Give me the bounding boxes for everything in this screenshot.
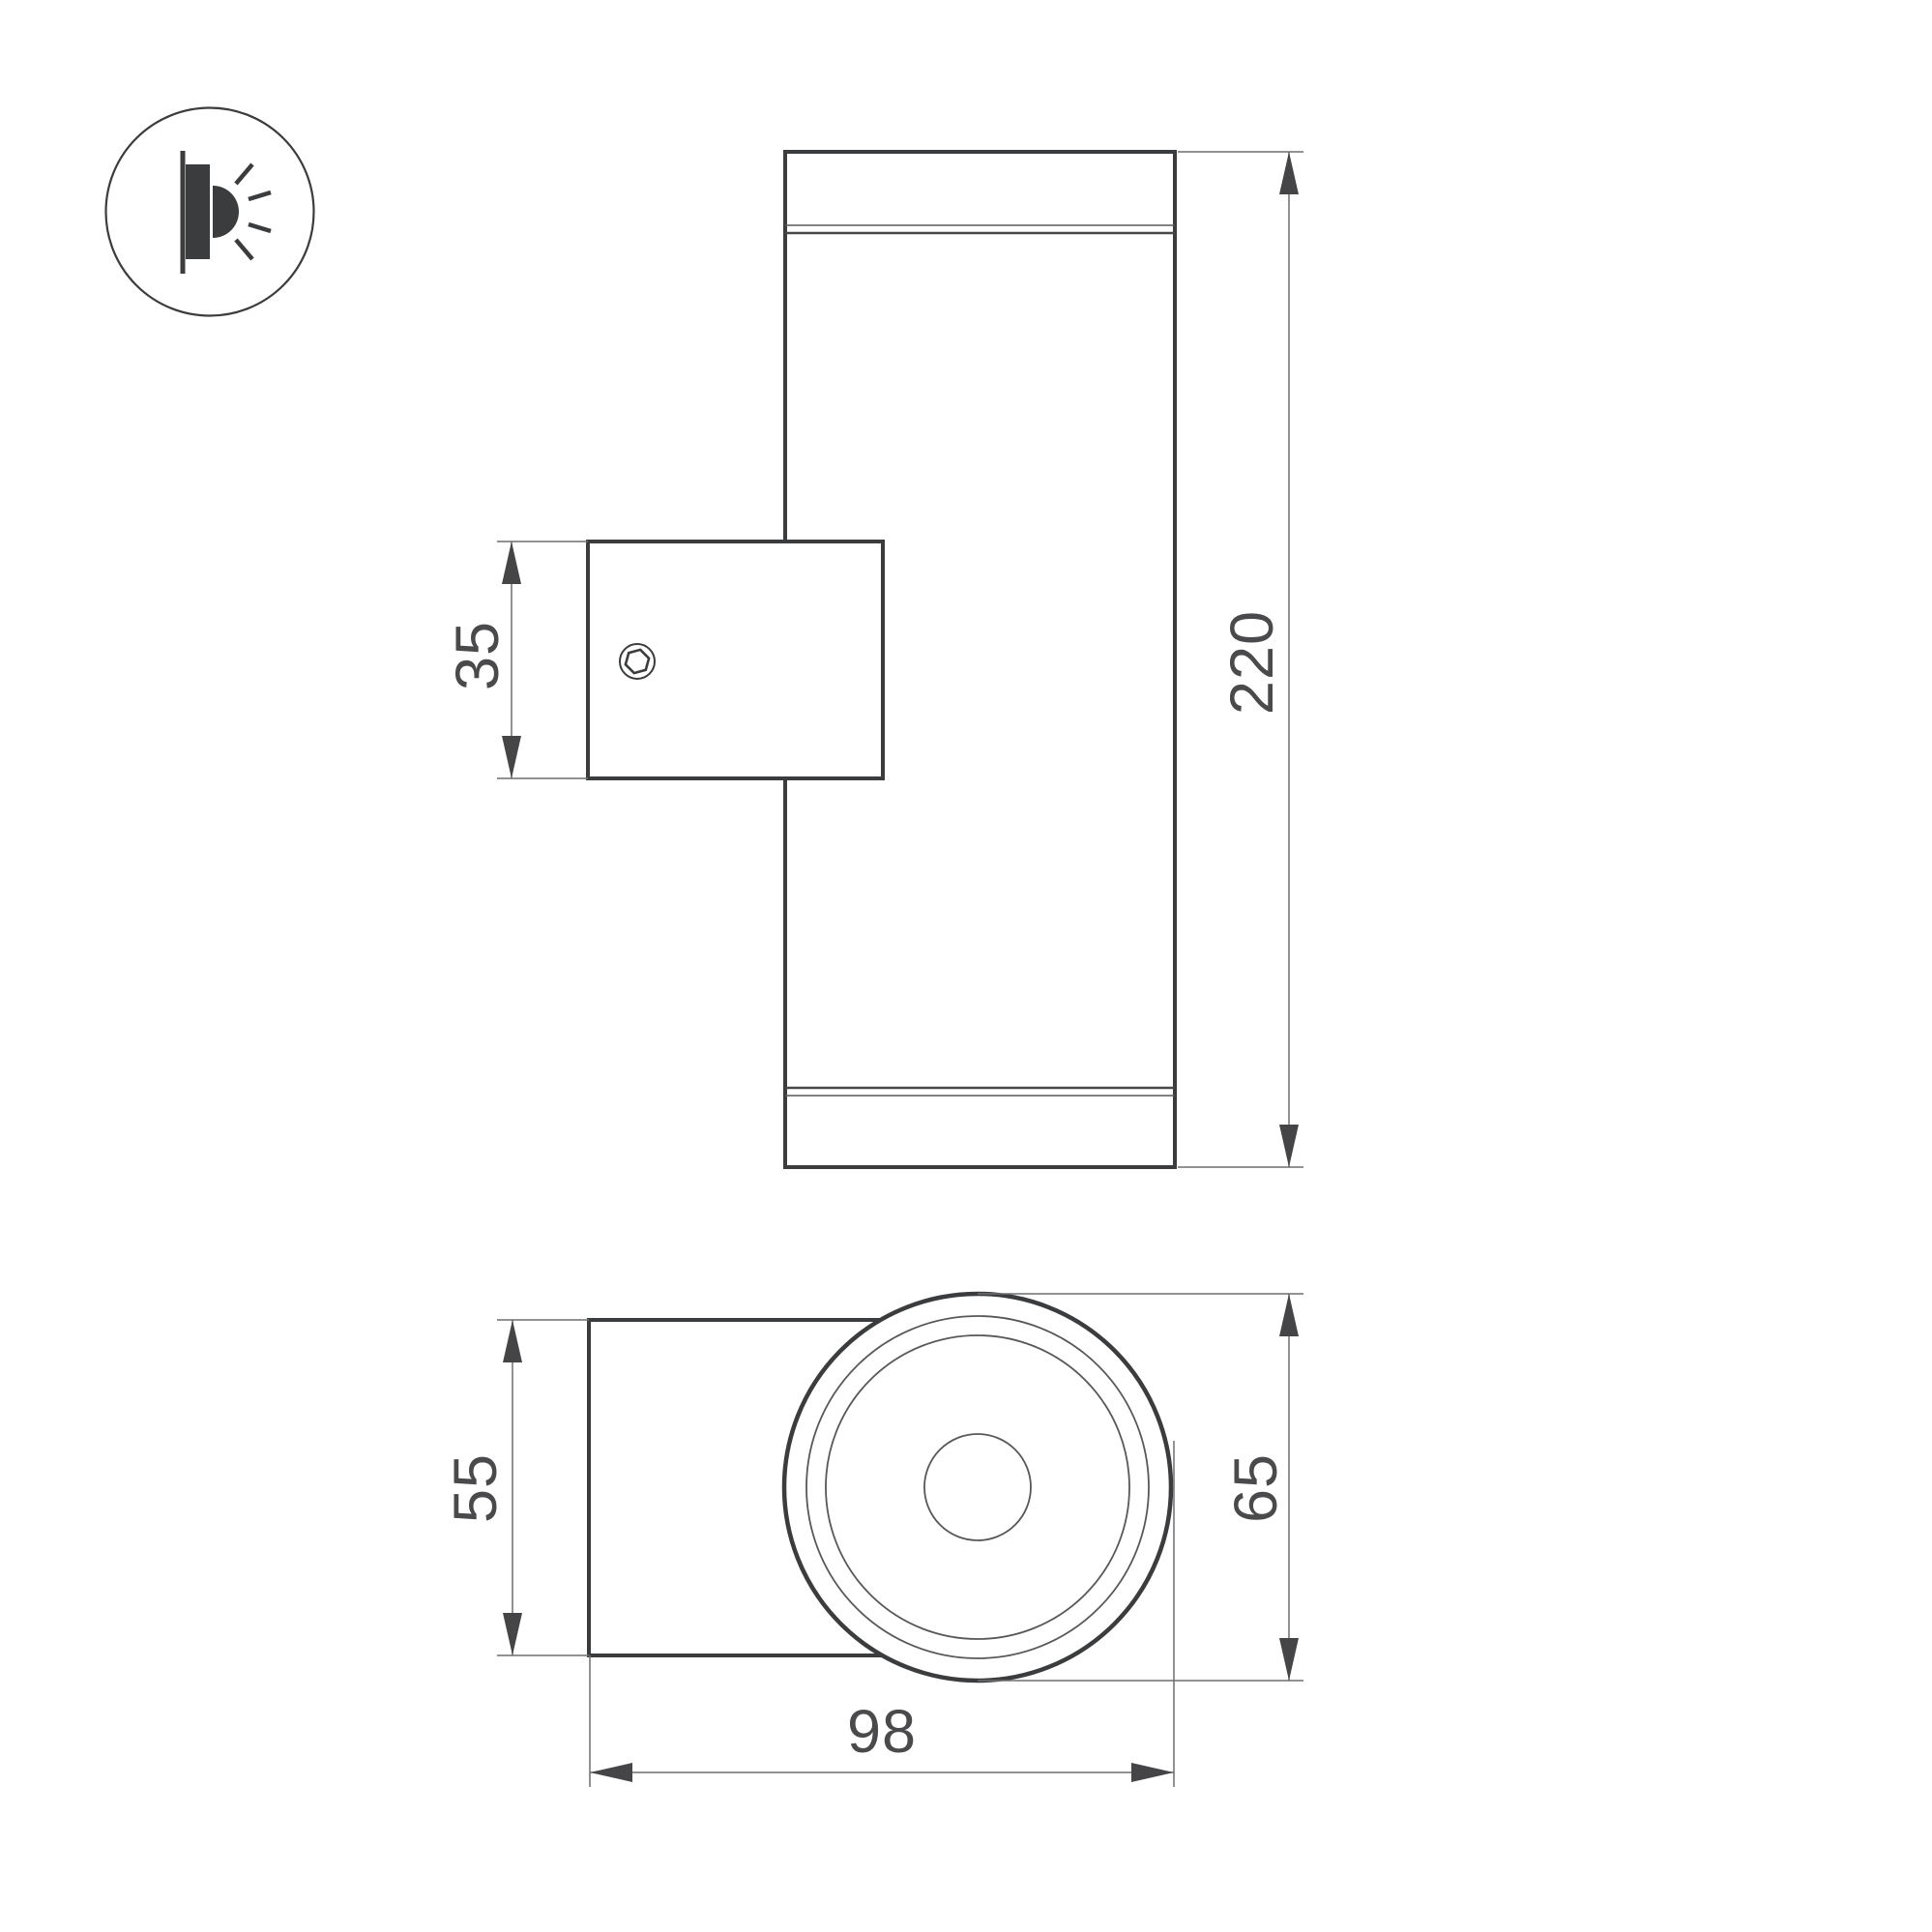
dimension-220: 220 xyxy=(1178,152,1303,1167)
icon-wall-line xyxy=(181,151,186,274)
mounting-bracket-side xyxy=(588,542,883,778)
icon-light-rays xyxy=(236,164,271,259)
icon-lamp-body xyxy=(186,164,210,259)
dim-55-label: 55 xyxy=(442,1453,510,1523)
dimension-35: 35 xyxy=(444,542,588,778)
dim-98-arrow-right xyxy=(1131,1763,1174,1782)
dim-65-arrow-up xyxy=(1279,1294,1299,1336)
dim-65-arrow-down xyxy=(1279,1638,1299,1681)
dim-220-arrow-up xyxy=(1279,152,1299,194)
dim-220-arrow-down xyxy=(1279,1125,1299,1167)
icon-light-halfdisc xyxy=(213,186,239,238)
dim-35-arrow-down xyxy=(502,736,521,778)
dim-35-arrow-up xyxy=(502,542,521,584)
dimension-55: 55 xyxy=(442,1320,589,1655)
side-view xyxy=(588,152,1175,1167)
dim-220-label: 220 xyxy=(1218,610,1286,715)
dim-98-arrow-left xyxy=(590,1763,632,1782)
dim-55-arrow-down xyxy=(503,1613,522,1655)
dim-98-label: 98 xyxy=(847,1698,917,1766)
drawing-canvas: 35 220 55 xyxy=(0,0,1932,1932)
technical-drawing-svg: 35 220 55 xyxy=(0,0,1932,1932)
bottom-view xyxy=(589,1294,1171,1681)
body-outer-circle xyxy=(784,1294,1171,1681)
dim-35-label: 35 xyxy=(444,621,512,690)
dim-55-arrow-up xyxy=(503,1320,522,1362)
dim-65-label: 65 xyxy=(1222,1453,1290,1523)
wall-light-emission-icon xyxy=(106,108,314,316)
